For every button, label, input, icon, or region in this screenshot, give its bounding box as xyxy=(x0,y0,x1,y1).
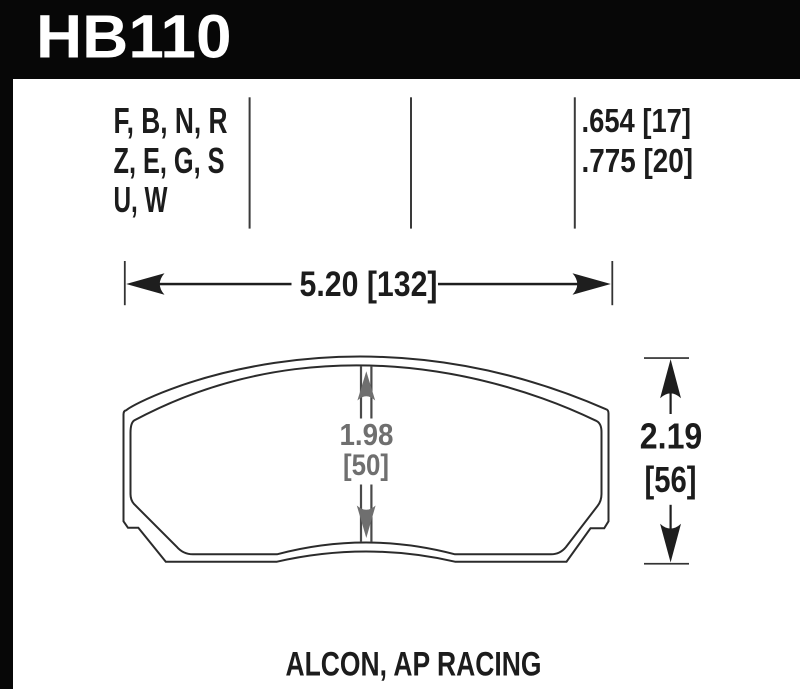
svg-text:.654 [17]: .654 [17] xyxy=(582,102,692,139)
svg-text:.775 [20]: .775 [20] xyxy=(582,142,694,179)
svg-text:U, W: U, W xyxy=(114,179,168,220)
svg-text:1.98: 1.98 xyxy=(340,418,394,452)
svg-text:[56]: [56] xyxy=(645,459,697,500)
svg-text:5.20 [132]: 5.20 [132] xyxy=(300,265,438,304)
svg-text:[50]: [50] xyxy=(343,449,389,482)
svg-text:2.19: 2.19 xyxy=(640,415,703,456)
svg-text:F, B, N, R: F, B, N, R xyxy=(114,100,228,141)
svg-text:ALCON, AP RACING: ALCON, AP RACING xyxy=(286,645,542,683)
svg-text:Z, E, G, S: Z, E, G, S xyxy=(114,140,225,181)
svg-text:HB110: HB110 xyxy=(36,3,232,71)
